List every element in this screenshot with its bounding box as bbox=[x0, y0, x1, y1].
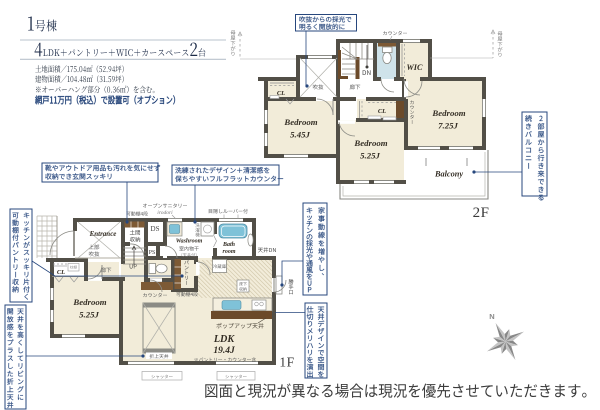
svg-text:5.25J: 5.25J bbox=[79, 310, 99, 320]
svg-text:LDK: LDK bbox=[213, 334, 236, 345]
svg-text:CL: CL bbox=[378, 108, 386, 115]
svg-text:7.25J: 7.25J bbox=[438, 121, 458, 131]
svg-text:PS: PS bbox=[149, 250, 156, 256]
svg-text:Bedroom: Bedroom bbox=[72, 297, 106, 307]
svg-text:room: room bbox=[222, 249, 235, 255]
svg-text:irodori: irodori bbox=[157, 210, 173, 216]
svg-text:Balcony: Balcony bbox=[434, 170, 463, 179]
svg-text:1F: 1F bbox=[279, 355, 294, 370]
svg-text:CL: CL bbox=[57, 269, 65, 276]
svg-text:CL: CL bbox=[277, 90, 285, 97]
svg-text:Bedroom: Bedroom bbox=[353, 138, 387, 148]
svg-text:Washroom: Washroom bbox=[176, 239, 203, 245]
svg-text:N: N bbox=[489, 312, 494, 321]
svg-text:Bedroom: Bedroom bbox=[283, 117, 317, 127]
svg-text:DS: DS bbox=[151, 225, 160, 233]
svg-text:Entrance: Entrance bbox=[89, 230, 117, 238]
svg-text:WIC: WIC bbox=[407, 63, 423, 72]
svg-text:5.25J: 5.25J bbox=[360, 151, 380, 161]
svg-text:5.45J: 5.45J bbox=[290, 130, 310, 140]
svg-text:2F: 2F bbox=[473, 205, 490, 221]
svg-text:Bath: Bath bbox=[222, 242, 236, 248]
svg-text:19.4J: 19.4J bbox=[213, 346, 235, 356]
svg-text:Bedroom: Bedroom bbox=[431, 108, 465, 118]
